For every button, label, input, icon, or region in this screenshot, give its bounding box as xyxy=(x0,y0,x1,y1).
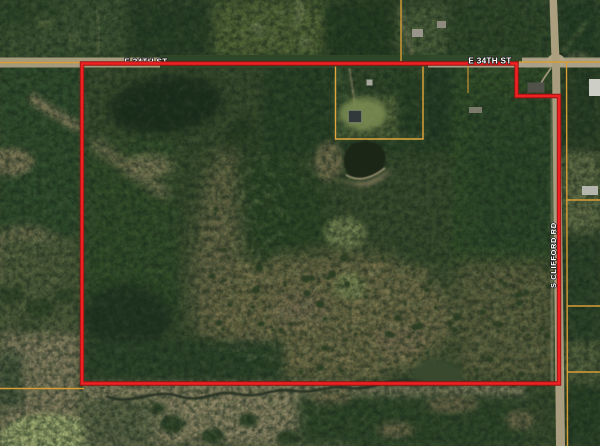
svg-text:E 34TH ST: E 34TH ST xyxy=(468,57,511,66)
svg-text:S CLIFFORD RD: S CLIFFORD RD xyxy=(549,222,558,288)
